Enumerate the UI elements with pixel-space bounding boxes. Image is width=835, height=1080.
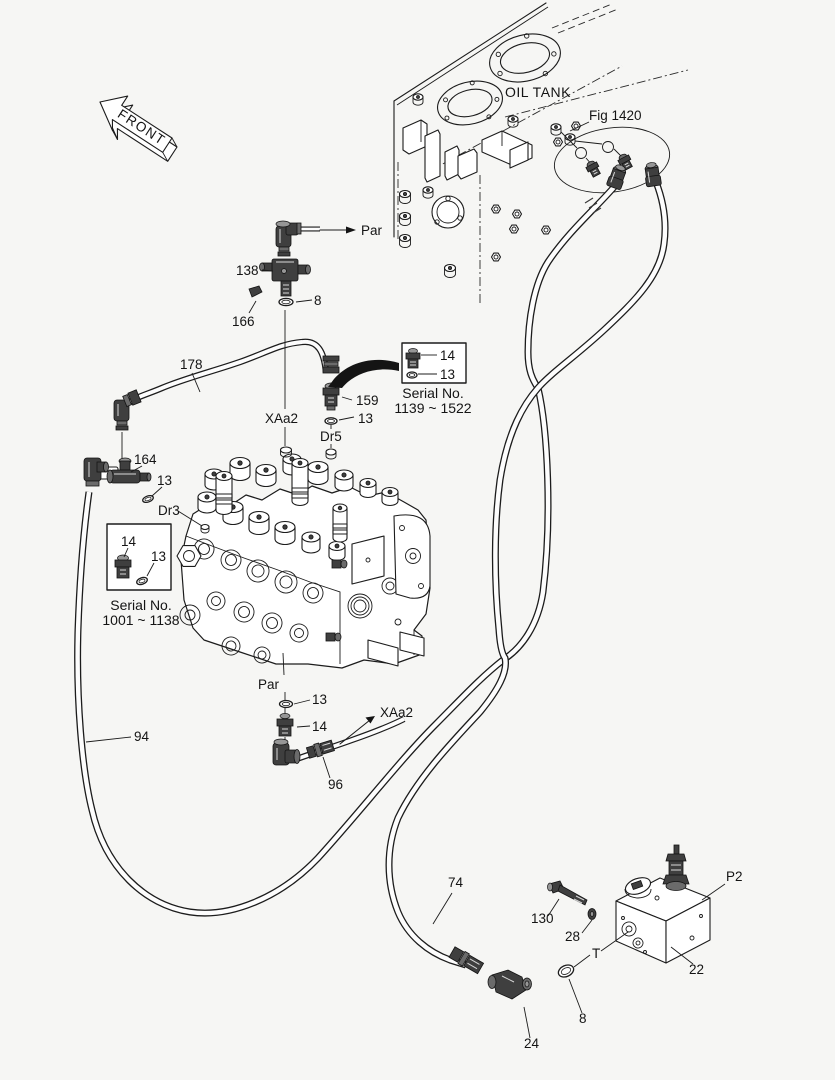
port-xaa2-bottom-label: XAa2	[380, 705, 413, 720]
part-178-label: 178	[180, 357, 203, 372]
part-159-label: 159	[356, 393, 379, 408]
hose-74-ferrule	[449, 946, 485, 975]
serial-upper-oring	[407, 372, 417, 378]
serial-lower-fitting	[115, 555, 131, 578]
elbow-24	[488, 970, 532, 999]
part-166-label: 166	[232, 314, 255, 329]
serial-upper-caption2: 1139 ~ 1522	[394, 400, 471, 416]
serial-lower-caption1: Serial No.	[110, 597, 171, 613]
part-28-label: 28	[565, 929, 580, 944]
washer-28	[588, 909, 596, 920]
oil-tank	[394, 3, 688, 305]
tank-flange-ring-2	[433, 75, 507, 132]
tank-round-flange	[432, 196, 464, 228]
serial-box-upper	[402, 343, 466, 383]
part-22-label: 22	[689, 962, 704, 977]
hose-96	[294, 719, 404, 760]
elbow-138-top	[276, 221, 301, 256]
part-94-label: 94	[134, 729, 150, 744]
part-130-label: 130	[531, 911, 554, 926]
serial-upper-14-label: 14	[440, 348, 456, 363]
part-74-label: 74	[448, 875, 464, 890]
fig-1420-label: Fig 1420	[589, 108, 642, 123]
hose-178	[128, 342, 326, 403]
fig1420-hose-elbows	[606, 162, 661, 190]
serial-upper-13-label: 13	[440, 367, 455, 382]
part-8-bottom-label: 8	[579, 1011, 587, 1026]
oring-13-dr5	[325, 418, 337, 424]
part-164-label: 164	[134, 452, 157, 467]
port-dr3-label: Dr3	[158, 503, 180, 518]
piping-diagram: FRONT	[0, 0, 835, 1080]
part-13-dr3-label: 13	[157, 473, 172, 488]
elbow-94-start	[84, 458, 109, 486]
serial-upper-caption1: Serial No.	[402, 385, 463, 401]
elbow-178-end	[114, 390, 141, 430]
port-par-bottom-label: Par	[258, 677, 280, 692]
tank-flange-ring-1	[484, 27, 565, 89]
relief-valve	[663, 845, 689, 891]
oring-8-top	[279, 298, 293, 305]
fig1420-fitting-a	[584, 159, 602, 178]
part-24-label: 24	[524, 1036, 540, 1051]
part-8-top-label: 8	[314, 293, 322, 308]
oring-8-bottom	[556, 963, 575, 980]
bolt-130	[548, 881, 588, 905]
front-direction-arrow: FRONT	[100, 96, 177, 161]
valve-mini-fitting-2	[326, 633, 341, 641]
part-13-dr5-label: 13	[358, 411, 373, 426]
port-p2-label: P2	[726, 869, 743, 884]
valve-mini-fitting-1	[332, 560, 347, 568]
part-138-label: 138	[236, 263, 259, 278]
elbow-96	[273, 739, 300, 765]
oring-13-par	[280, 701, 293, 708]
serial-lower-13-label: 13	[151, 549, 166, 564]
elbow-hose74-end	[643, 162, 661, 187]
valve-port-dr5-boss	[326, 449, 336, 459]
fitting-14-par	[277, 713, 293, 736]
tee-164-assembly	[84, 390, 154, 504]
part-14-par-label: 14	[312, 719, 328, 734]
valve-block-22	[616, 875, 710, 963]
tee-138	[260, 259, 311, 296]
port-par-top-label: Par	[361, 223, 383, 238]
valve-left-hex	[177, 546, 201, 567]
parts-diagram-page: FRONT	[0, 0, 835, 1080]
port-xaa2-mid-label: XAa2	[265, 411, 298, 426]
tank-blocks	[403, 120, 532, 182]
plug-166	[249, 286, 262, 297]
valve-22-assembly	[449, 845, 711, 999]
serial-lower-14-label: 14	[121, 534, 137, 549]
oil-tank-label: OIL TANK	[505, 84, 571, 100]
hose-178-ferrule	[323, 356, 339, 373]
port-t-label: T	[592, 946, 600, 961]
part-13-par-label: 13	[312, 692, 327, 707]
serial-box-arrow	[328, 360, 399, 388]
port-dr5-label: Dr5	[320, 429, 342, 444]
serial-lower-caption2: 1001 ~ 1138	[102, 612, 179, 628]
part-96-label: 96	[328, 777, 343, 792]
